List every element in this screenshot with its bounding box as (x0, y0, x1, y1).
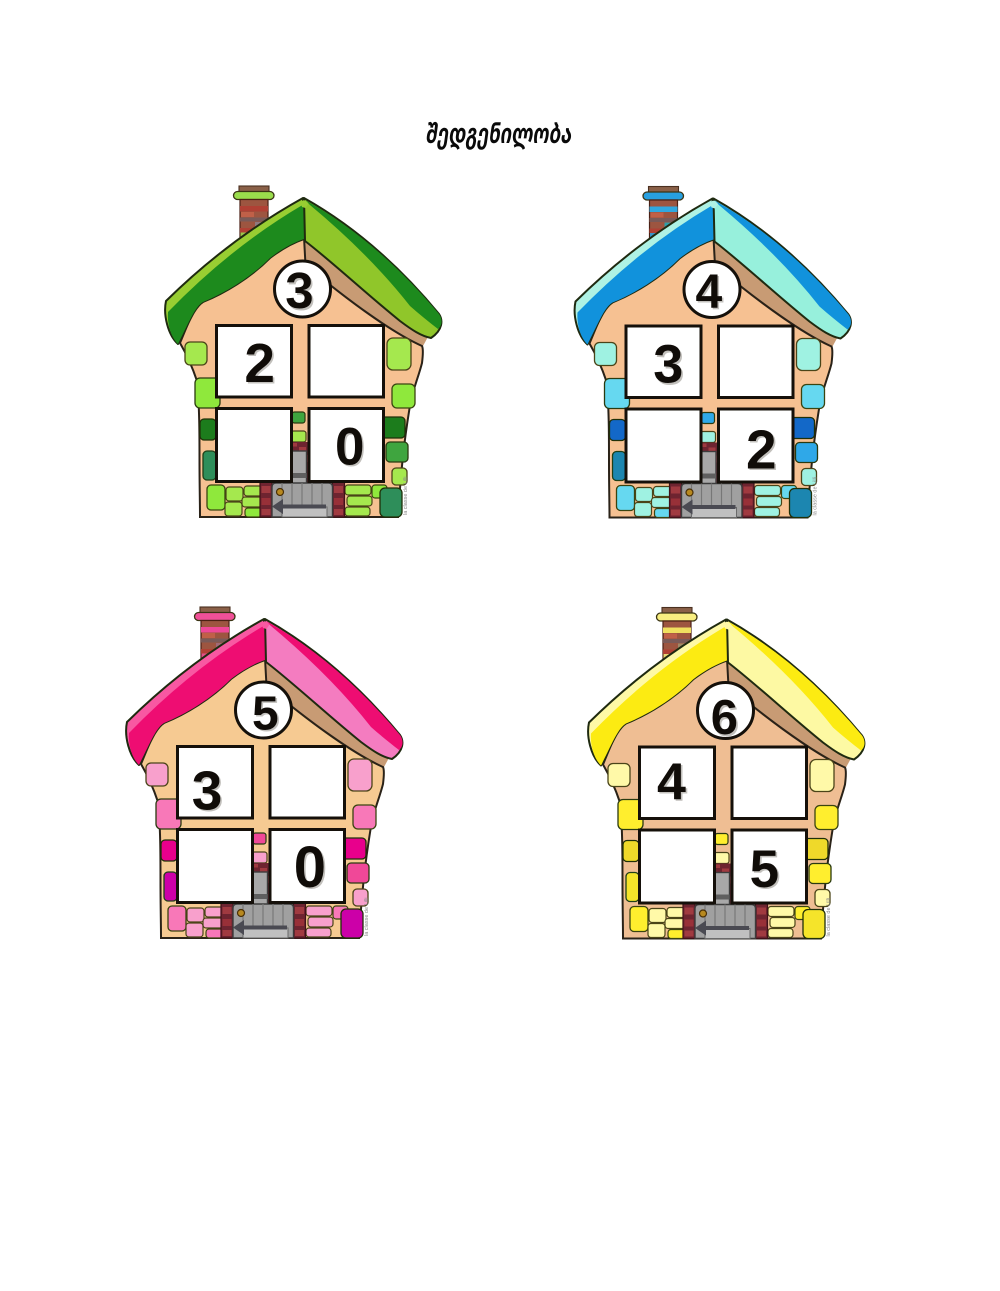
svg-text:0: 0 (335, 418, 364, 477)
svg-text:6: 6 (711, 691, 738, 745)
svg-text:5: 5 (750, 840, 779, 899)
svg-text:4: 4 (695, 266, 722, 319)
svg-text:2: 2 (244, 332, 275, 394)
svg-text:4: 4 (657, 753, 686, 811)
svg-text:2: 2 (746, 418, 777, 480)
svg-text:3: 3 (192, 760, 223, 822)
svg-text:0: 0 (294, 835, 326, 900)
svg-text:5: 5 (252, 687, 279, 740)
svg-text:3: 3 (653, 335, 683, 395)
svg-text:3: 3 (285, 262, 313, 319)
